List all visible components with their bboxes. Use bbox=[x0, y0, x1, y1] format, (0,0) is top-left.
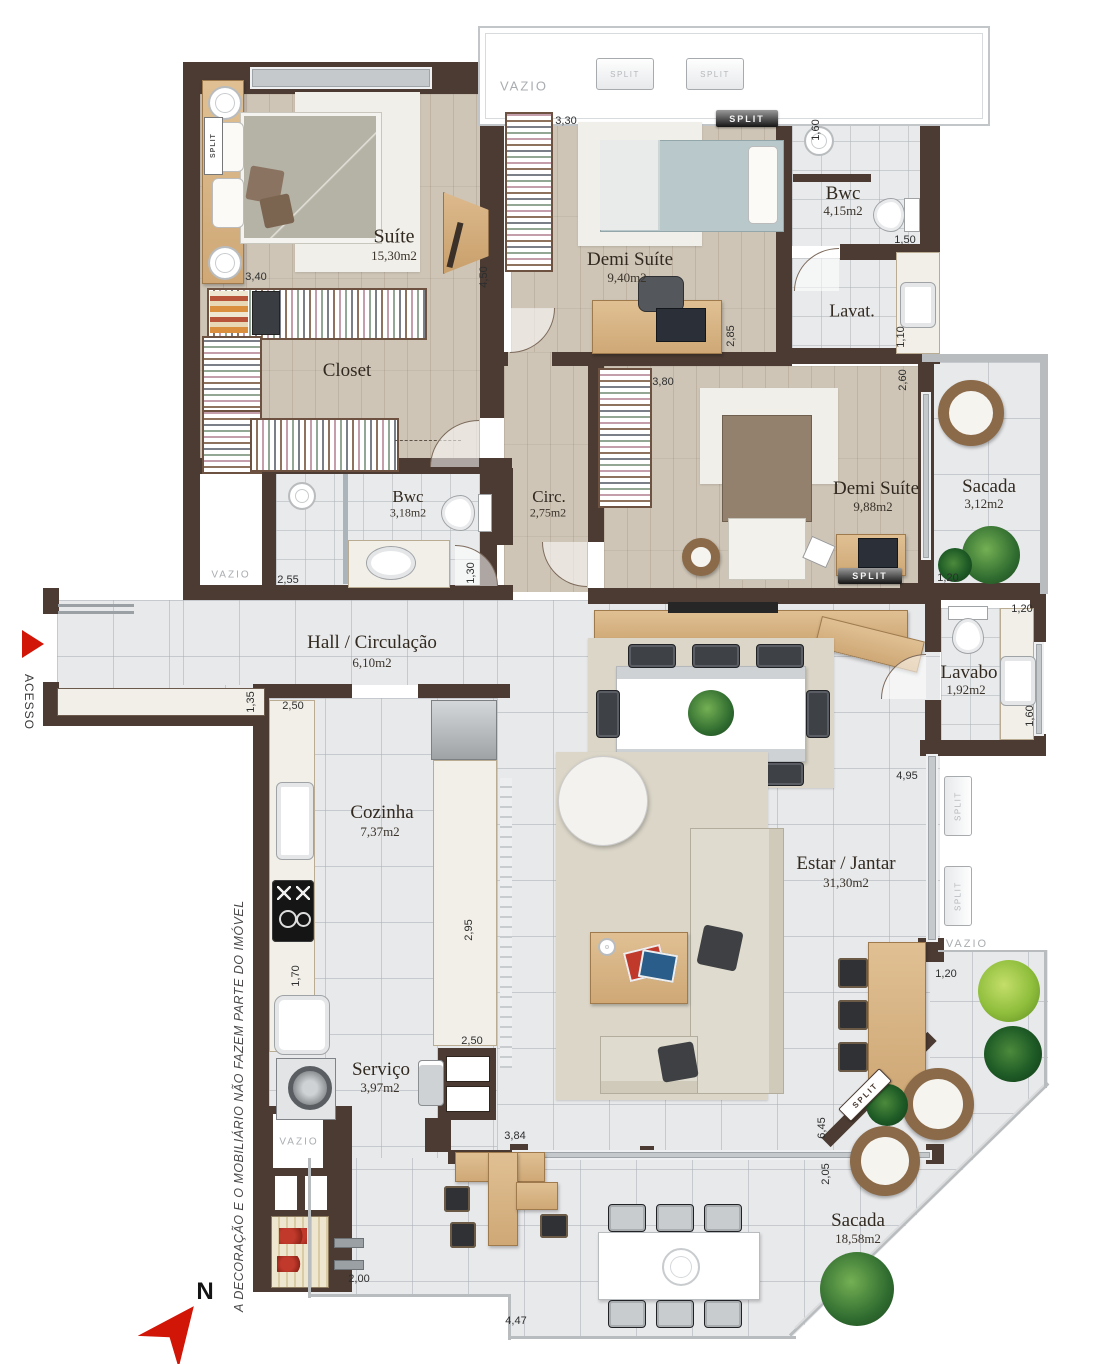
palm-plant bbox=[984, 1026, 1042, 1082]
access-label: ACESSO bbox=[22, 674, 36, 730]
disclaimer-text: A DECORAÇÃO E O MOBILIÁRIO NÃO FAZEM PAR… bbox=[232, 900, 246, 1312]
dimension: 1,60 bbox=[810, 119, 822, 140]
dimension: 3,80 bbox=[652, 376, 673, 388]
closet-rack bbox=[250, 418, 399, 472]
vazio-label-right: VAZIO bbox=[946, 938, 988, 950]
water-heater bbox=[418, 1060, 444, 1106]
balcony-rail bbox=[308, 1294, 510, 1297]
wall-segment bbox=[183, 62, 200, 462]
vazio-label-left: VAZIO bbox=[211, 570, 250, 581]
sofa-pillow bbox=[657, 1041, 699, 1083]
outdoor-chair bbox=[656, 1204, 694, 1232]
dining-chair bbox=[628, 644, 676, 668]
tree bbox=[978, 960, 1040, 1022]
split-label: SPLIT bbox=[838, 568, 902, 584]
laundry-sink bbox=[274, 995, 330, 1055]
dimension: 2,00 bbox=[348, 1273, 369, 1285]
outdoor-counter bbox=[488, 1152, 518, 1246]
barbecue-grill bbox=[271, 1216, 329, 1288]
table-plant bbox=[688, 690, 734, 736]
outdoor-chair bbox=[704, 1300, 742, 1328]
room-area-suite: 15,30m2 bbox=[371, 248, 417, 264]
room-label-servico: Serviço bbox=[352, 1059, 410, 1081]
floor-vazio-shaft-left bbox=[200, 474, 262, 584]
dimension: 1,60 bbox=[1024, 705, 1036, 726]
folded-clothes bbox=[210, 291, 248, 333]
bar-stool bbox=[838, 1000, 868, 1030]
wardrobe-rack bbox=[505, 112, 553, 272]
split-label: SPLIT bbox=[716, 110, 778, 127]
wall-niche bbox=[446, 1056, 490, 1082]
nightstand-lamp bbox=[208, 246, 242, 280]
hall-cabinet bbox=[57, 688, 265, 716]
room-label-demi-suite-1: Demi Suíte bbox=[587, 249, 673, 271]
toilet-tank bbox=[904, 198, 920, 232]
outdoor-chair bbox=[704, 1204, 742, 1232]
wall-segment bbox=[552, 352, 792, 366]
room-area-bwc-1: 4,15m2 bbox=[823, 203, 862, 219]
burner bbox=[279, 910, 297, 928]
dimension: 2,95 bbox=[463, 919, 475, 940]
room-area-sacada-2: 18,58m2 bbox=[835, 1231, 881, 1247]
room-label-hall: Hall / Circulação bbox=[307, 632, 437, 654]
dimension: 3,40 bbox=[245, 271, 266, 283]
wall-segment bbox=[262, 470, 276, 588]
wall-niche bbox=[446, 1086, 490, 1112]
access-arrow bbox=[22, 630, 44, 658]
wall-segment bbox=[776, 248, 792, 348]
dimension: 4,50 bbox=[478, 266, 490, 287]
dimension: 2,50 bbox=[282, 700, 303, 712]
dimension: 6,45 bbox=[816, 1117, 828, 1138]
dimension: 1,20 bbox=[937, 572, 958, 584]
dimension: 3,84 bbox=[504, 1130, 525, 1142]
kitchen-sink bbox=[276, 782, 314, 860]
wall-segment bbox=[418, 684, 510, 698]
dining-chair bbox=[806, 690, 830, 738]
dining-chair bbox=[692, 644, 740, 668]
toilet bbox=[952, 618, 984, 654]
nightstand-lamp bbox=[208, 86, 242, 120]
room-label-cozinha: Cozinha bbox=[350, 802, 413, 824]
table-knob bbox=[598, 938, 616, 956]
table-plate bbox=[662, 1248, 700, 1286]
vazio-label-service: VAZIO bbox=[279, 1137, 318, 1148]
plant bbox=[962, 526, 1020, 584]
toilet-tank bbox=[478, 494, 492, 532]
split-condenser-unit: SPLIT bbox=[944, 776, 972, 836]
lavat-sink bbox=[900, 282, 936, 328]
garment bbox=[252, 291, 280, 335]
pillow bbox=[212, 178, 244, 228]
pillow bbox=[748, 146, 778, 224]
room-area-sacada-1: 3,12m2 bbox=[964, 496, 1003, 512]
dimension: 2,05 bbox=[820, 1163, 832, 1184]
stool bbox=[540, 1214, 568, 1238]
burner bbox=[296, 886, 310, 900]
outdoor-chair bbox=[656, 1300, 694, 1328]
dimension: 1,20 bbox=[1011, 603, 1032, 615]
room-label-bwc-1: Bwc bbox=[826, 183, 861, 205]
floor-plan: SPLIT SPLIT SPLIT bbox=[0, 0, 1101, 1364]
balcony-rail bbox=[508, 1336, 796, 1339]
dimension: 4,47 bbox=[505, 1315, 526, 1327]
room-area-demi-suite-2: 9,88m2 bbox=[853, 499, 892, 515]
room-label-circ: Circ. bbox=[532, 487, 566, 507]
dimension: 1,10 bbox=[895, 326, 907, 347]
entry-door bbox=[58, 611, 134, 614]
room-area-bwc-2: 3,18m2 bbox=[390, 506, 426, 521]
room-label-estar-jantar: Estar / Jantar bbox=[796, 853, 895, 875]
window bbox=[921, 392, 931, 560]
room-area-demi-suite-1: 9,40m2 bbox=[607, 270, 646, 286]
laptop bbox=[858, 538, 898, 568]
door-swing bbox=[794, 248, 839, 291]
toilet bbox=[441, 495, 475, 531]
wall-segment bbox=[425, 1118, 451, 1152]
sofa-pillow bbox=[696, 924, 743, 971]
wall-segment bbox=[255, 684, 352, 698]
split-label: SPLIT bbox=[204, 117, 223, 175]
burner bbox=[296, 912, 311, 927]
wall-segment bbox=[793, 174, 871, 182]
rattan-chair bbox=[938, 380, 1004, 446]
laptop bbox=[656, 308, 706, 342]
room-label-sacada-2: Sacada bbox=[831, 1210, 885, 1232]
burner bbox=[277, 886, 291, 900]
room-area-lavabo: 1,92m2 bbox=[946, 682, 985, 698]
balcony-rail bbox=[1040, 354, 1048, 594]
entry-door bbox=[58, 604, 134, 607]
kitchen-island bbox=[433, 760, 497, 1046]
dimension: 2,85 bbox=[725, 325, 737, 346]
room-label-demi-suite-2: Demi Suíte bbox=[833, 478, 919, 500]
room-area-servico: 3,97m2 bbox=[360, 1080, 399, 1096]
wardrobe-rack bbox=[598, 368, 652, 508]
dimension: 3,30 bbox=[555, 115, 576, 127]
bar-stool bbox=[838, 1042, 868, 1072]
wall-segment bbox=[920, 740, 1046, 756]
room-label-lavat: Lavat. bbox=[829, 301, 874, 322]
fridge bbox=[431, 700, 497, 760]
grill-skewer-handle bbox=[334, 1260, 364, 1270]
dimension: 2,60 bbox=[897, 369, 909, 390]
stool bbox=[444, 1186, 470, 1212]
lavabo-sink bbox=[1000, 656, 1036, 706]
glass-door-track bbox=[500, 778, 512, 1068]
dimension: 1,70 bbox=[290, 965, 302, 986]
grill-food bbox=[279, 1228, 307, 1244]
room-area-estar-jantar: 31,30m2 bbox=[823, 875, 869, 891]
bed-foot bbox=[728, 518, 806, 580]
split-condenser-unit: SPLIT bbox=[596, 58, 654, 90]
window bbox=[250, 67, 432, 89]
room-area-hall: 6,10m2 bbox=[352, 655, 391, 671]
room-label-closet: Closet bbox=[323, 360, 372, 382]
washer-drum bbox=[288, 1066, 332, 1110]
balcony-rail bbox=[938, 950, 1046, 952]
dimension: 1,35 bbox=[245, 691, 257, 712]
grill-food bbox=[277, 1256, 303, 1272]
outdoor-counter bbox=[516, 1182, 558, 1210]
wall-niche bbox=[275, 1176, 297, 1210]
tv bbox=[668, 602, 778, 613]
dining-chair bbox=[756, 644, 804, 668]
vazio-label-top: VAZIO bbox=[500, 79, 548, 94]
dimension: 2,50 bbox=[461, 1035, 482, 1047]
bar-stool bbox=[838, 958, 868, 988]
round-armchair bbox=[558, 756, 648, 846]
room-label-suite: Suíte bbox=[373, 226, 414, 249]
balcony-rail bbox=[1044, 950, 1047, 1088]
wall-segment bbox=[253, 684, 269, 1164]
dimension: 4,95 bbox=[896, 770, 917, 782]
room-area-circ: 2,75m2 bbox=[530, 506, 566, 521]
toilet bbox=[873, 198, 905, 232]
room-label-lavabo: Lavabo bbox=[941, 662, 998, 684]
shower-head bbox=[288, 482, 316, 510]
room-label-bwc-2: Bwc bbox=[392, 487, 423, 507]
dining-chair bbox=[596, 690, 620, 738]
room-label-sacada-1: Sacada bbox=[962, 476, 1016, 498]
wall-segment bbox=[480, 368, 504, 418]
wall-segment bbox=[43, 588, 59, 614]
wall-segment bbox=[925, 600, 941, 652]
closet-rack bbox=[202, 336, 262, 414]
bed-sheet bbox=[600, 140, 660, 230]
dimension: 1,20 bbox=[935, 968, 956, 980]
dimension: 1,50 bbox=[894, 234, 915, 246]
palm-plant bbox=[820, 1252, 894, 1326]
room-area-cozinha: 7,37m2 bbox=[360, 824, 399, 840]
bed-demi-2 bbox=[722, 415, 812, 522]
outdoor-chair bbox=[608, 1204, 646, 1232]
wall-segment bbox=[900, 583, 1046, 600]
wall-segment bbox=[925, 700, 941, 742]
dimension: 2,55 bbox=[277, 574, 298, 586]
window bbox=[926, 754, 938, 942]
pouf bbox=[682, 538, 720, 576]
bwc2-sink bbox=[366, 546, 416, 580]
magazines bbox=[638, 949, 678, 983]
split-condenser-unit: SPLIT bbox=[944, 866, 972, 926]
balcony-rail bbox=[308, 1158, 311, 1298]
dimension: 1,30 bbox=[465, 562, 477, 583]
split-condenser-unit: SPLIT bbox=[686, 58, 744, 90]
north-label: N bbox=[196, 1278, 213, 1306]
cushion bbox=[259, 193, 295, 229]
stool bbox=[450, 1222, 476, 1248]
wall-segment bbox=[183, 458, 200, 600]
grill-skewer-handle bbox=[334, 1238, 364, 1248]
balcony-rail bbox=[922, 354, 1048, 362]
wall-segment bbox=[497, 352, 508, 366]
outdoor-chair bbox=[608, 1300, 646, 1328]
